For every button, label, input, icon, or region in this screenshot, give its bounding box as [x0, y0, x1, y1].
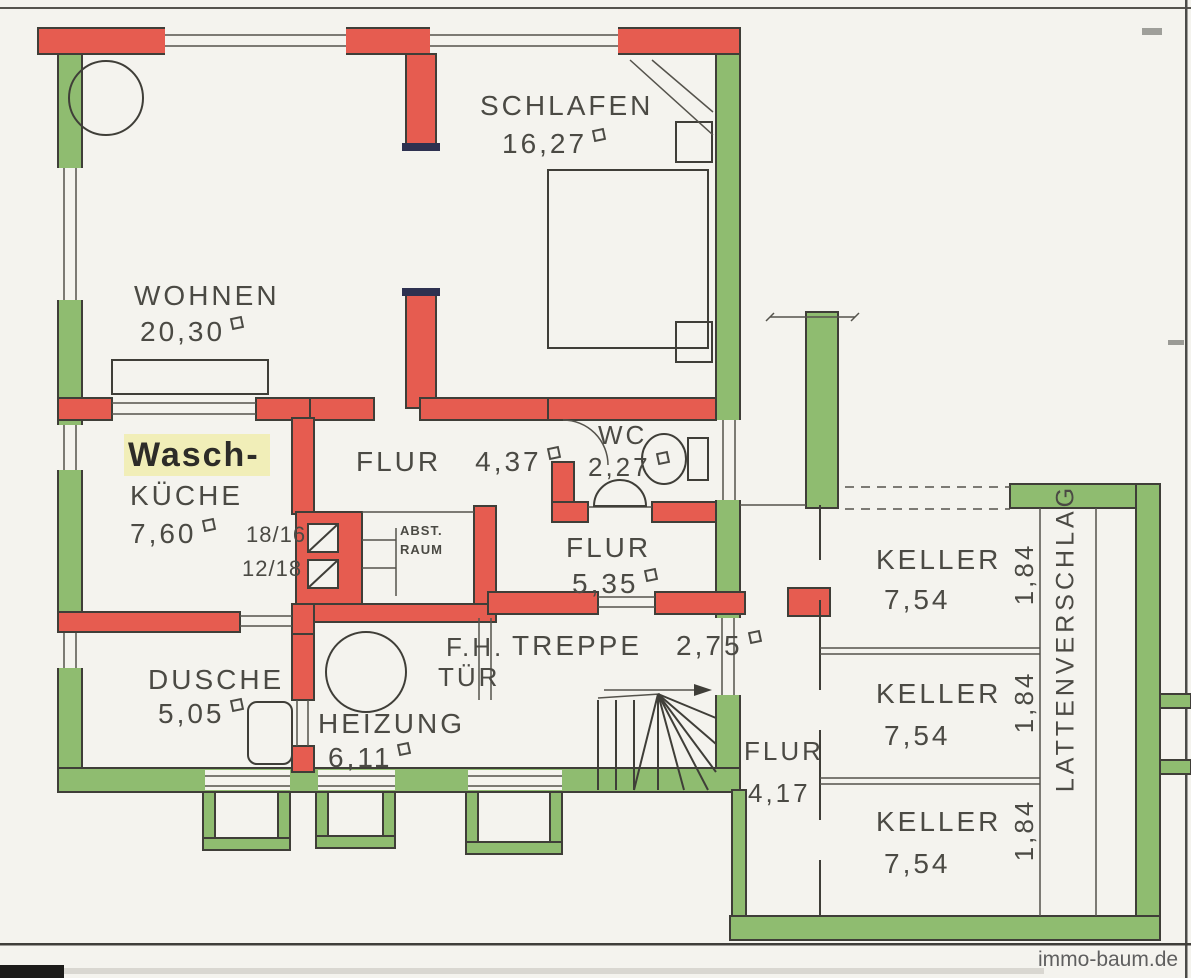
room-label-keller-3: KELLER	[876, 808, 1001, 836]
sqm-icon	[397, 742, 411, 756]
wall-cellar-door-jamb	[788, 588, 830, 616]
area-label-schlafen: 16,27	[502, 130, 605, 158]
area-label-flur-keller: 4,17	[748, 780, 811, 806]
room-label-schlafen: SCHLAFEN	[480, 92, 653, 120]
room-label-flur-mitte: FLUR	[566, 534, 651, 562]
wall-partition-lower	[406, 294, 436, 408]
room-label-wasch-prefix: Wasch-	[124, 438, 270, 472]
sqm-icon	[655, 451, 669, 465]
wall-annex-bottom	[730, 916, 1160, 940]
dim-label-keller-3: 1,84	[1011, 799, 1037, 862]
area-label-dusche: 5,05	[158, 700, 243, 728]
window-well-2	[316, 792, 395, 848]
room-label-wc: WC	[598, 422, 647, 448]
area-label-kueche: 7,60	[130, 520, 215, 548]
chimney	[296, 512, 396, 604]
sideboard-icon	[112, 360, 268, 394]
area-label-keller-2: 7,54	[884, 722, 951, 750]
area-label-wohnen: 20,30	[140, 318, 243, 346]
window-well-3	[466, 792, 562, 854]
sqm-icon	[592, 128, 606, 142]
floorplan-page: SCHLAFEN 16,27 WOHNEN 20,30 Wasch- KÜCHE…	[0, 0, 1191, 978]
nightstand-icon	[676, 122, 712, 162]
wall-stub-right-2	[1160, 760, 1191, 774]
wall-stub-right-1	[1160, 694, 1191, 708]
wall-annex-spur	[806, 312, 838, 508]
door-label-fh: F.H.	[446, 634, 504, 660]
watermark: immo-baum.de	[1038, 949, 1178, 970]
sqm-icon	[747, 630, 761, 644]
room-label-flur-og: FLUR4,37	[356, 448, 560, 476]
room-label-treppe: TREPPE2,75	[512, 632, 761, 660]
dim-label-keller-2: 1,84	[1011, 671, 1037, 734]
nightstand-icon	[676, 322, 712, 362]
room-label-keller-2: KELLER	[876, 680, 1001, 708]
area-label-heizung: 6,11	[328, 744, 410, 772]
sqm-icon	[229, 698, 243, 712]
washbasin-icon	[248, 702, 292, 764]
door-label-tuer: TÜR	[438, 664, 500, 690]
room-label-wohnen: WOHNEN	[134, 282, 280, 310]
boiler-icon	[326, 632, 406, 712]
sqm-icon	[201, 518, 215, 532]
room-label-lattenverschlag: LATTENVERSCHLAG	[1054, 484, 1079, 792]
sqm-icon	[547, 446, 561, 460]
area-label-keller-1: 7,54	[884, 586, 951, 614]
room-label-kueche: KÜCHE	[130, 482, 243, 510]
stair-direction-arrow	[694, 684, 712, 696]
sqm-icon	[643, 568, 657, 582]
area-label-flur-mitte: 5,35	[572, 570, 657, 598]
area-label-wc: 2,27	[588, 454, 669, 480]
window-well-1	[203, 792, 290, 850]
wall-partition-upper	[406, 54, 436, 148]
dim-label-keller-1: 1,84	[1011, 543, 1037, 606]
wall-annex-right	[1136, 484, 1160, 940]
room-label-abstellraum: ABST.RAUM	[400, 522, 443, 560]
chimney-dim-bottom: 12/18	[242, 558, 302, 580]
room-label-keller-1: KELLER	[876, 546, 1001, 574]
sqm-icon	[230, 316, 244, 330]
chimney-dim-top: 18/16	[246, 524, 306, 546]
top-wall	[38, 26, 740, 56]
wall-annex-left	[732, 790, 746, 916]
room-label-heizung: HEIZUNG	[318, 710, 465, 738]
area-label-keller-3: 7,54	[884, 850, 951, 878]
sink-icon	[594, 480, 646, 506]
room-label-flur-keller: FLUR	[744, 738, 824, 764]
room-label-dusche: DUSCHE	[148, 666, 284, 694]
